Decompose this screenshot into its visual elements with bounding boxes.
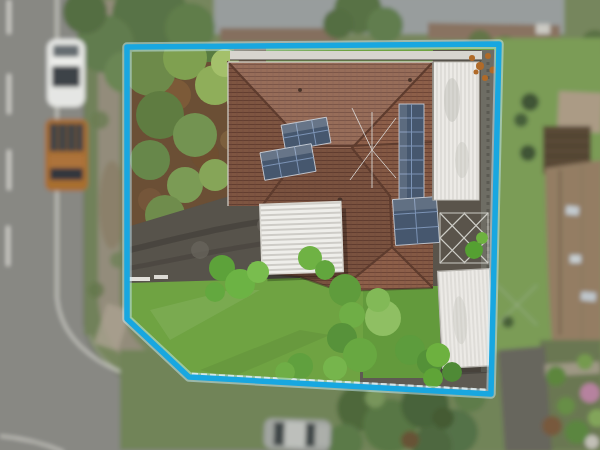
solar-array-east-square	[392, 197, 439, 246]
north-gutter	[230, 51, 482, 60]
property-interior	[120, 36, 505, 400]
garage-roof	[433, 62, 479, 200]
solar-array-east-strip	[399, 104, 424, 200]
lattice-plant-small	[476, 232, 488, 244]
pergola-roof	[260, 201, 349, 281]
aerial-photo	[0, 0, 600, 450]
